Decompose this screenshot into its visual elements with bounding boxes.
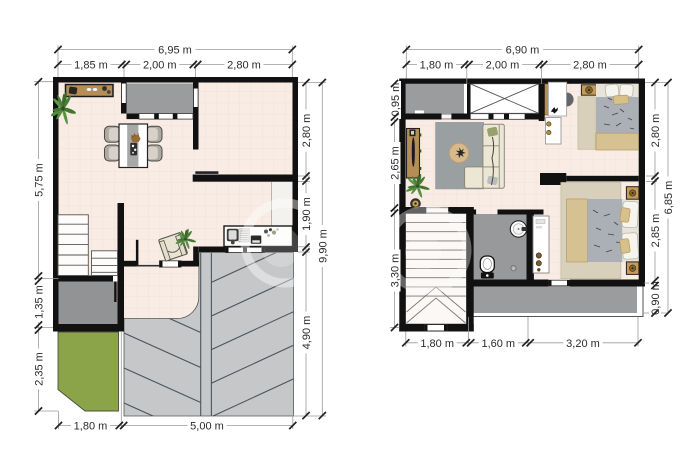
svg-text:3,30 m: 3,30 m <box>390 254 402 288</box>
svg-text:1,90 m: 1,90 m <box>301 197 313 231</box>
svg-text:2,85 m: 2,85 m <box>650 214 662 248</box>
svg-text:1,80 m: 1,80 m <box>74 421 108 433</box>
svg-text:9,90 m: 9,90 m <box>317 229 329 263</box>
svg-text:1,60 m: 1,60 m <box>481 338 515 350</box>
svg-text:2,80 m: 2,80 m <box>301 114 313 148</box>
svg-text:2,00 m: 2,00 m <box>143 60 177 72</box>
svg-text:5,00 m: 5,00 m <box>190 421 224 433</box>
svg-text:1,80 m: 1,80 m <box>420 338 454 350</box>
svg-text:2,65 m: 2,65 m <box>390 146 402 180</box>
svg-text:2,80 m: 2,80 m <box>650 114 662 148</box>
svg-text:2,35 m: 2,35 m <box>34 352 46 386</box>
svg-text:6,85 m: 6,85 m <box>663 181 675 215</box>
svg-text:0,90 m: 0,90 m <box>650 281 662 315</box>
svg-text:1,85 m: 1,85 m <box>74 60 108 72</box>
svg-text:3,20 m: 3,20 m <box>566 338 600 350</box>
svg-text:2,80 m: 2,80 m <box>227 60 261 72</box>
svg-text:1,35 m: 1,35 m <box>34 285 46 319</box>
svg-text:5,75 m: 5,75 m <box>34 163 46 197</box>
svg-text:4,90 m: 4,90 m <box>301 316 313 350</box>
svg-text:6,95 m: 6,95 m <box>158 45 192 57</box>
svg-text:6,90 m: 6,90 m <box>506 45 540 57</box>
svg-text:1,80 m: 1,80 m <box>420 60 454 72</box>
svg-text:0,95 m: 0,95 m <box>390 83 402 117</box>
svg-text:2,80 m: 2,80 m <box>573 60 607 72</box>
svg-text:2,00 m: 2,00 m <box>486 60 520 72</box>
